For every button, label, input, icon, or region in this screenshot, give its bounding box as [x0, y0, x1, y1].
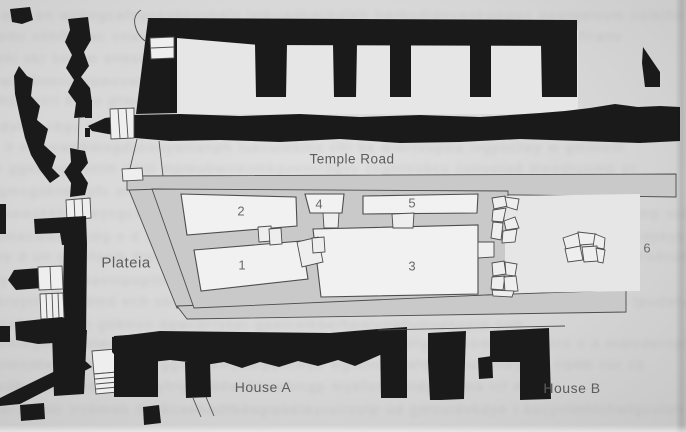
label-house-b: House B	[543, 380, 600, 396]
room-label-2: 2	[237, 204, 244, 219]
plan-labels: Temple Road Plateia House A House B 1 2 …	[0, 0, 686, 432]
label-plateia: Plateia	[101, 255, 150, 272]
scan-page-edge-shadow	[675, 0, 686, 432]
label-temple-road: Temple Road	[309, 152, 394, 167]
scan-page-bottom-margin	[0, 425, 686, 432]
room-label-3: 3	[408, 259, 415, 274]
scanned-plan-figure: iu ukfn at n en wybngcafnysepbkyybels iv…	[0, 0, 686, 432]
label-house-a: House A	[235, 379, 291, 395]
room-label-1: 1	[238, 258, 245, 273]
room-label-4: 4	[315, 197, 322, 212]
room-label-5: 5	[408, 196, 415, 211]
room-label-6: 6	[643, 241, 650, 256]
